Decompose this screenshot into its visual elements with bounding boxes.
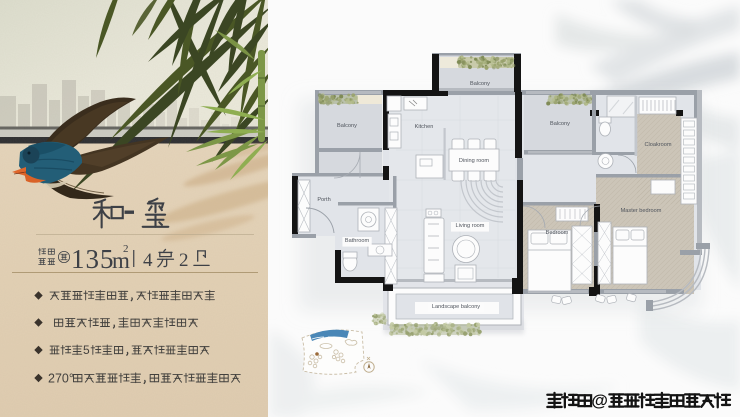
- svg-text:Porth: Porth: [317, 197, 330, 203]
- svg-text:2: 2: [179, 250, 189, 271]
- svg-text:270°: 270°: [48, 372, 74, 386]
- svg-text:Landscape balcony: Landscape balcony: [432, 304, 480, 310]
- svg-text:Bedroom: Bedroom: [546, 230, 569, 236]
- svg-text:Cloakroom: Cloakroom: [644, 142, 671, 148]
- svg-text:@: @: [591, 391, 608, 410]
- svg-text:Balcony: Balcony: [550, 121, 570, 127]
- svg-text:Balcony: Balcony: [337, 123, 357, 129]
- svg-text:4: 4: [143, 250, 153, 271]
- svg-text:5: 5: [83, 343, 90, 357]
- svg-text:Kitchen: Kitchen: [415, 124, 434, 130]
- svg-text:Master bedroom: Master bedroom: [621, 208, 662, 214]
- svg-text:Balcony: Balcony: [470, 81, 490, 87]
- svg-text:Dining room: Dining room: [459, 158, 489, 164]
- svg-text:Living room: Living room: [456, 223, 485, 229]
- svg-text:2: 2: [123, 243, 129, 255]
- svg-text:Bathroom: Bathroom: [345, 238, 370, 244]
- svg-text:135: 135: [71, 244, 115, 274]
